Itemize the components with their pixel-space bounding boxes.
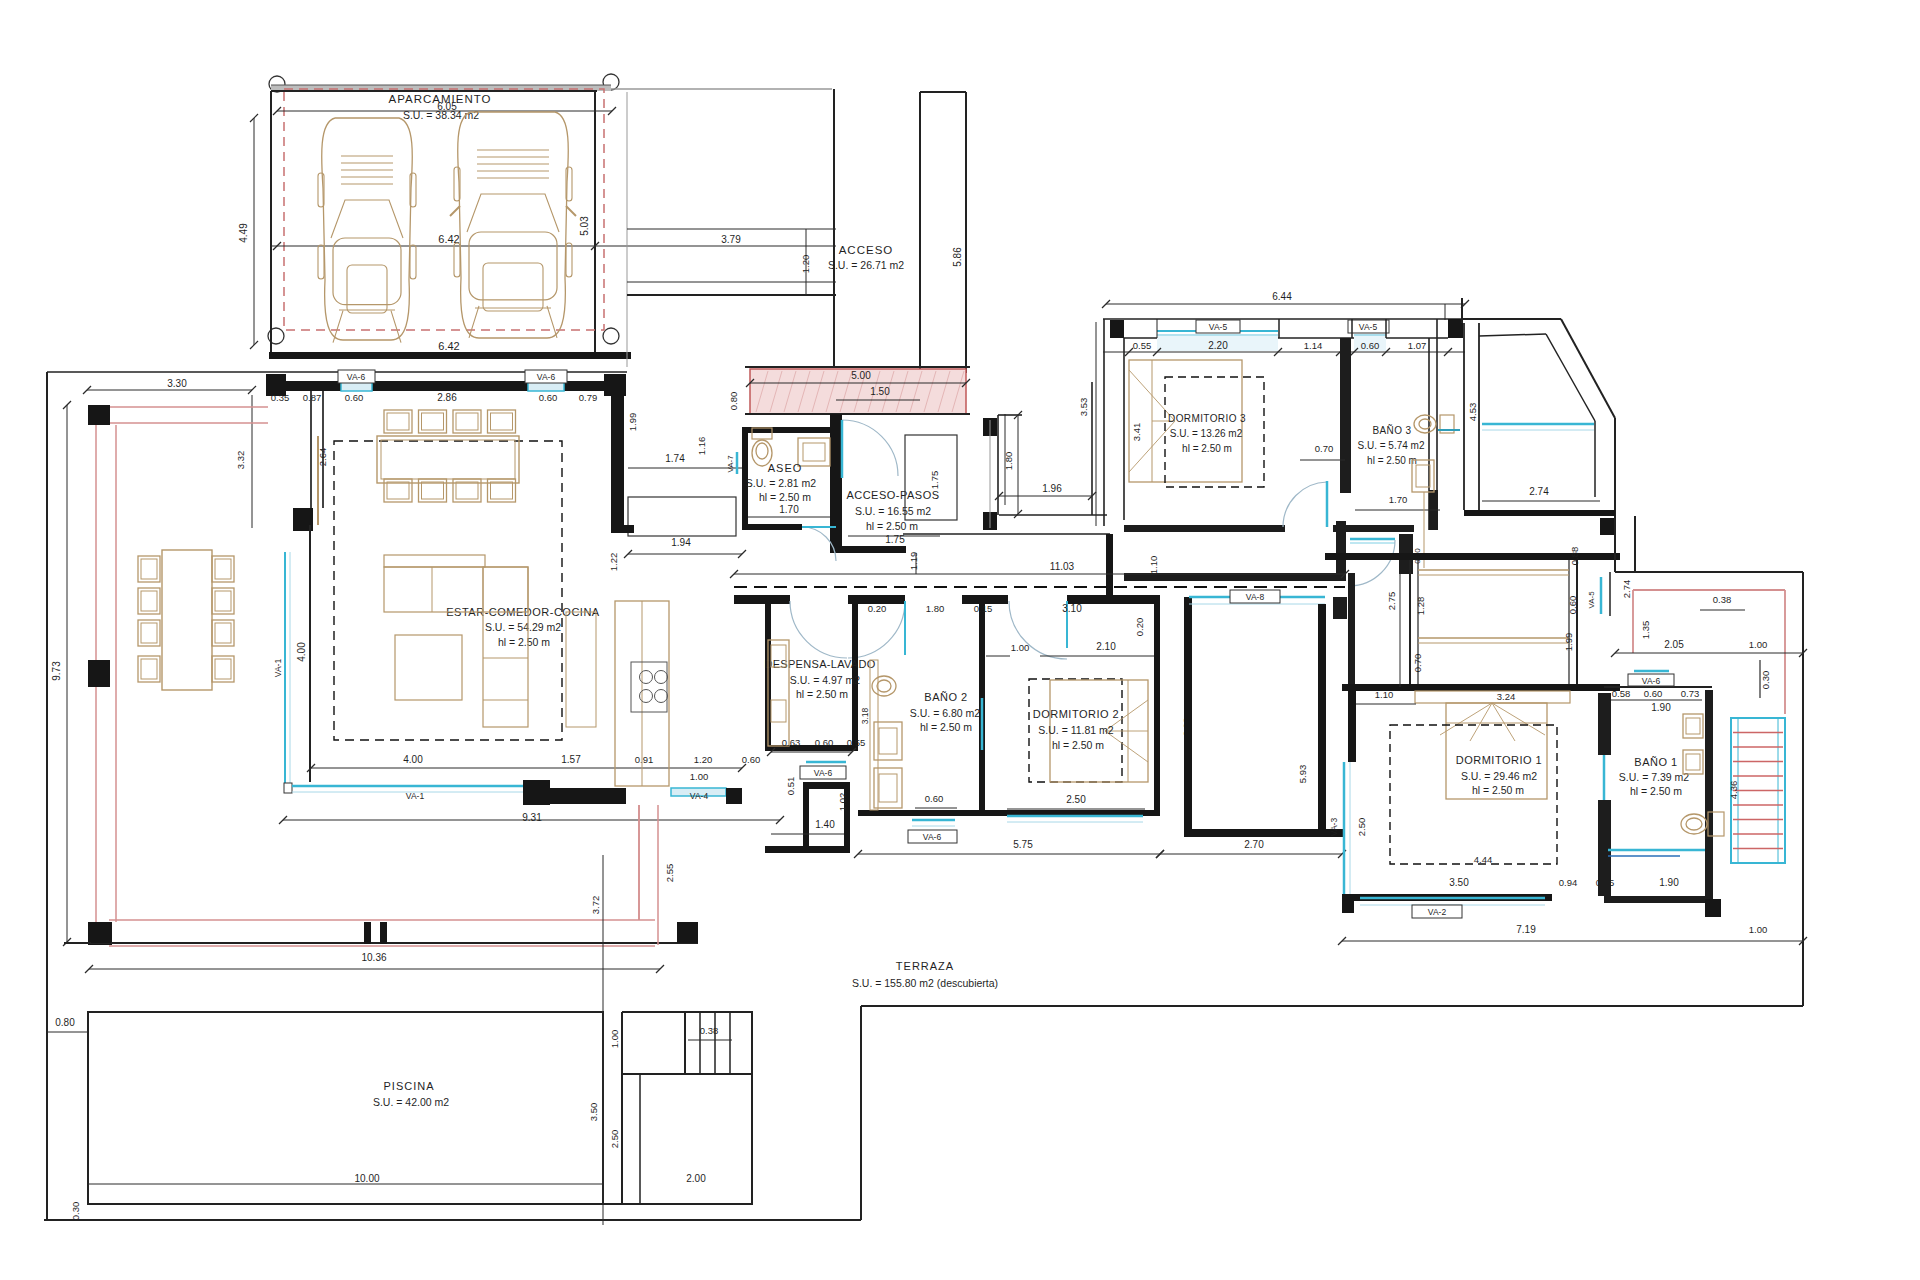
svg-text:hl = 2.50 m: hl = 2.50 m <box>866 520 918 532</box>
svg-text:2.50: 2.50 <box>609 1130 620 1149</box>
svg-text:1.16: 1.16 <box>696 437 707 456</box>
svg-text:VA-5: VA-5 <box>1587 591 1596 609</box>
svg-text:0.60: 0.60 <box>815 737 834 748</box>
svg-text:S.U. = 13.26 m2: S.U. = 13.26 m2 <box>1170 428 1243 439</box>
svg-text:VA-6: VA-6 <box>537 372 556 382</box>
svg-text:S.U. = 11.81 m2: S.U. = 11.81 m2 <box>1038 724 1114 736</box>
svg-text:S.U. = 42.00 m2: S.U. = 42.00 m2 <box>373 1096 449 1108</box>
svg-text:0.60: 0.60 <box>345 392 364 403</box>
svg-text:0.79: 0.79 <box>579 392 598 403</box>
svg-text:2.00: 2.00 <box>686 1173 706 1184</box>
svg-text:7.19: 7.19 <box>1516 924 1536 935</box>
svg-text:2.50: 2.50 <box>1356 818 1367 837</box>
svg-text:4.49: 4.49 <box>238 223 249 243</box>
svg-text:3.32: 3.32 <box>235 451 246 470</box>
svg-text:1.50: 1.50 <box>870 386 890 397</box>
svg-text:10.00: 10.00 <box>354 1173 379 1184</box>
svg-text:DORMITORIO 3: DORMITORIO 3 <box>1168 413 1246 424</box>
svg-text:DESPENSA-LAVADO: DESPENSA-LAVADO <box>764 658 875 670</box>
svg-text:2.75: 2.75 <box>1386 592 1397 611</box>
svg-text:1.07: 1.07 <box>1408 340 1427 351</box>
svg-text:2.55: 2.55 <box>664 864 675 883</box>
svg-text:0.38: 0.38 <box>700 1025 719 1036</box>
svg-text:0.73: 0.73 <box>1681 688 1700 699</box>
svg-text:10.36: 10.36 <box>361 952 386 963</box>
svg-text:1.28: 1.28 <box>1415 597 1426 616</box>
svg-text:ACCESO: ACCESO <box>839 244 894 256</box>
svg-text:3.50: 3.50 <box>1449 877 1469 888</box>
svg-text:3.53: 3.53 <box>1078 398 1089 417</box>
svg-text:1.99: 1.99 <box>627 413 638 432</box>
svg-text:0.51: 0.51 <box>785 777 796 796</box>
svg-text:0.60: 0.60 <box>539 392 558 403</box>
svg-text:4.53: 4.53 <box>1467 403 1478 422</box>
svg-text:0.35: 0.35 <box>271 392 290 403</box>
svg-text:VA-8: VA-8 <box>1246 592 1265 602</box>
svg-text:0.88: 0.88 <box>1569 547 1580 566</box>
svg-text:0.60: 0.60 <box>742 754 761 765</box>
svg-text:VA-1: VA-1 <box>406 791 425 801</box>
svg-text:S.U. = 54.29 m2: S.U. = 54.29 m2 <box>485 621 561 633</box>
svg-text:2.20: 2.20 <box>1208 340 1228 351</box>
svg-text:5.00: 5.00 <box>851 370 871 381</box>
svg-text:4.00: 4.00 <box>403 754 423 765</box>
svg-text:0.58: 0.58 <box>1612 688 1631 699</box>
svg-text:PISCINA: PISCINA <box>383 1080 434 1092</box>
svg-text:S.U. = 5.74 m2: S.U. = 5.74 m2 <box>1358 440 1425 451</box>
svg-text:TERRAZA: TERRAZA <box>896 960 954 972</box>
svg-text:0.38: 0.38 <box>1713 594 1732 605</box>
svg-text:S.U. = 4.97 m2: S.U. = 4.97 m2 <box>790 674 860 686</box>
svg-text:VA-2: VA-2 <box>1428 907 1447 917</box>
svg-text:3.79: 3.79 <box>721 234 741 245</box>
svg-text:hl = 2.50 m: hl = 2.50 m <box>920 721 972 733</box>
svg-text:1.00: 1.00 <box>1011 642 1030 653</box>
svg-text:hl = 2.50 m: hl = 2.50 m <box>759 491 811 503</box>
svg-text:2.86: 2.86 <box>437 392 457 403</box>
svg-text:0.60: 0.60 <box>1361 340 1380 351</box>
svg-text:0.30: 0.30 <box>70 1202 81 1221</box>
svg-text:0.70: 0.70 <box>1412 654 1423 673</box>
svg-text:1.99: 1.99 <box>1563 633 1574 652</box>
svg-text:VA-6: VA-6 <box>814 768 833 778</box>
svg-text:1.70: 1.70 <box>1389 494 1408 505</box>
svg-text:6.42: 6.42 <box>438 340 459 352</box>
svg-text:S.U. = 16.55 m2: S.U. = 16.55 m2 <box>855 505 931 517</box>
svg-text:4.00: 4.00 <box>296 642 307 662</box>
svg-text:hl = 2.50 m: hl = 2.50 m <box>1367 455 1417 466</box>
svg-text:DORMITORIO 1: DORMITORIO 1 <box>1456 754 1542 766</box>
svg-text:0.80: 0.80 <box>55 1017 75 1028</box>
svg-text:2.10: 2.10 <box>1096 641 1116 652</box>
svg-text:2.74: 2.74 <box>1621 580 1632 599</box>
svg-text:2.74: 2.74 <box>1529 486 1549 497</box>
svg-text:BAÑO 1: BAÑO 1 <box>1634 756 1677 768</box>
svg-text:S.U. = 26.71 m2: S.U. = 26.71 m2 <box>828 259 904 271</box>
svg-text:0.70: 0.70 <box>1315 443 1334 454</box>
svg-text:1.10: 1.10 <box>1148 556 1159 575</box>
svg-text:1.02: 1.02 <box>837 793 848 812</box>
svg-text:1.57: 1.57 <box>561 754 581 765</box>
svg-text:1.00: 1.00 <box>1749 639 1768 650</box>
svg-text:1.10: 1.10 <box>1375 689 1394 700</box>
svg-text:1.96: 1.96 <box>1042 483 1062 494</box>
svg-text:0.87: 0.87 <box>303 392 322 403</box>
svg-text:3.41: 3.41 <box>1131 423 1142 442</box>
svg-text:5.03: 5.03 <box>579 216 590 236</box>
svg-text:3.72: 3.72 <box>590 896 601 915</box>
svg-text:3.30: 3.30 <box>167 378 187 389</box>
svg-text:ACCESO-PASOS: ACCESO-PASOS <box>846 489 939 501</box>
svg-text:S.U. = 2.81 m2: S.U. = 2.81 m2 <box>746 477 816 489</box>
svg-text:VA-3: VA-3 <box>1329 818 1339 837</box>
svg-text:2.64: 2.64 <box>317 448 328 467</box>
svg-text:hl = 2.50 m: hl = 2.50 m <box>1630 785 1682 797</box>
svg-text:S.U. = 155.80 m2 (descubierta): S.U. = 155.80 m2 (descubierta) <box>852 977 998 989</box>
svg-text:0.55: 0.55 <box>847 737 866 748</box>
svg-text:S.U. = 38.34 m2: S.U. = 38.34 m2 <box>403 109 479 121</box>
svg-text:0.60: 0.60 <box>925 793 944 804</box>
svg-text:hl = 2.50 m: hl = 2.50 m <box>796 688 848 700</box>
svg-text:1.35: 1.35 <box>1640 621 1651 640</box>
svg-text:1.74: 1.74 <box>665 453 685 464</box>
svg-text:hl = 2.50 m: hl = 2.50 m <box>1472 784 1524 796</box>
svg-text:BAÑO 2: BAÑO 2 <box>924 691 967 703</box>
svg-text:9.31: 9.31 <box>522 812 542 823</box>
svg-text:S.U. = 29.46 m2: S.U. = 29.46 m2 <box>1461 770 1537 782</box>
svg-text:0.20: 0.20 <box>1134 618 1145 637</box>
svg-text:1.70: 1.70 <box>779 504 799 515</box>
svg-text:VA-4: VA-4 <box>690 791 709 801</box>
svg-text:3.10: 3.10 <box>1062 603 1082 614</box>
svg-text:0.60: 0.60 <box>1644 688 1663 699</box>
svg-text:0.94: 0.94 <box>1559 877 1578 888</box>
svg-text:1.19: 1.19 <box>908 552 919 571</box>
svg-text:DORMITORIO 2: DORMITORIO 2 <box>1033 708 1119 720</box>
svg-text:1.00: 1.00 <box>690 771 709 782</box>
svg-text:0.15: 0.15 <box>974 603 993 614</box>
svg-text:2.50: 2.50 <box>1066 794 1086 805</box>
svg-text:hl = 2.50 m: hl = 2.50 m <box>498 636 550 648</box>
svg-text:6.44: 6.44 <box>1272 291 1292 302</box>
svg-text:0.60: 0.60 <box>1567 596 1578 615</box>
svg-text:2.70: 2.70 <box>1244 839 1264 850</box>
svg-text:VA-7: VA-7 <box>726 455 735 473</box>
svg-text:1.75: 1.75 <box>929 471 940 490</box>
svg-text:VA-5: VA-5 <box>1359 322 1378 332</box>
svg-text:5.75: 5.75 <box>1013 839 1033 850</box>
svg-text:3.50: 3.50 <box>588 1103 599 1122</box>
svg-text:0.20: 0.20 <box>868 603 887 614</box>
svg-text:2.05: 2.05 <box>1664 639 1684 650</box>
svg-text:1.00: 1.00 <box>609 1030 620 1049</box>
svg-text:0.80: 0.80 <box>728 392 739 411</box>
svg-text:BAÑO 3: BAÑO 3 <box>1372 424 1411 436</box>
svg-text:hl = 2.50 m: hl = 2.50 m <box>1052 739 1104 751</box>
svg-text:5.86: 5.86 <box>952 247 963 267</box>
svg-text:0.63: 0.63 <box>782 737 801 748</box>
svg-text:3.18: 3.18 <box>860 707 870 724</box>
svg-text:0.91: 0.91 <box>635 754 654 765</box>
svg-text:1.00: 1.00 <box>1749 924 1768 935</box>
svg-text:1.40: 1.40 <box>815 819 835 830</box>
svg-text:VA-6: VA-6 <box>923 832 942 842</box>
svg-text:VA-5: VA-5 <box>1209 322 1228 332</box>
svg-text:S.U. = 7.39 m2: S.U. = 7.39 m2 <box>1619 771 1689 783</box>
svg-text:4.36: 4.36 <box>1728 781 1739 800</box>
svg-text:0.30: 0.30 <box>1760 671 1771 690</box>
svg-text:VA-6: VA-6 <box>347 372 366 382</box>
svg-text:1.20: 1.20 <box>800 255 811 274</box>
svg-text:1.90: 1.90 <box>1651 702 1671 713</box>
svg-text:3.24: 3.24 <box>1497 691 1516 702</box>
svg-text:VA-1: VA-1 <box>273 659 283 678</box>
svg-text:1.20: 1.20 <box>694 754 713 765</box>
svg-text:1.90: 1.90 <box>1659 877 1679 888</box>
svg-text:9.73: 9.73 <box>51 661 62 681</box>
svg-text:S.U. = 6.80 m2: S.U. = 6.80 m2 <box>910 707 980 719</box>
svg-text:1.80: 1.80 <box>926 603 945 614</box>
svg-text:1.94: 1.94 <box>671 537 691 548</box>
svg-text:VA-6: VA-6 <box>1642 676 1661 686</box>
svg-text:11.03: 11.03 <box>1050 561 1075 572</box>
svg-text:1.14: 1.14 <box>1304 340 1323 351</box>
svg-text:ASEO: ASEO <box>768 462 803 474</box>
svg-text:0.55: 0.55 <box>1133 340 1152 351</box>
svg-text:5.93: 5.93 <box>1297 765 1308 784</box>
svg-text:1.22: 1.22 <box>608 553 619 572</box>
svg-text:4.44: 4.44 <box>1474 854 1493 865</box>
svg-text:hl = 2.50 m: hl = 2.50 m <box>1182 443 1232 454</box>
